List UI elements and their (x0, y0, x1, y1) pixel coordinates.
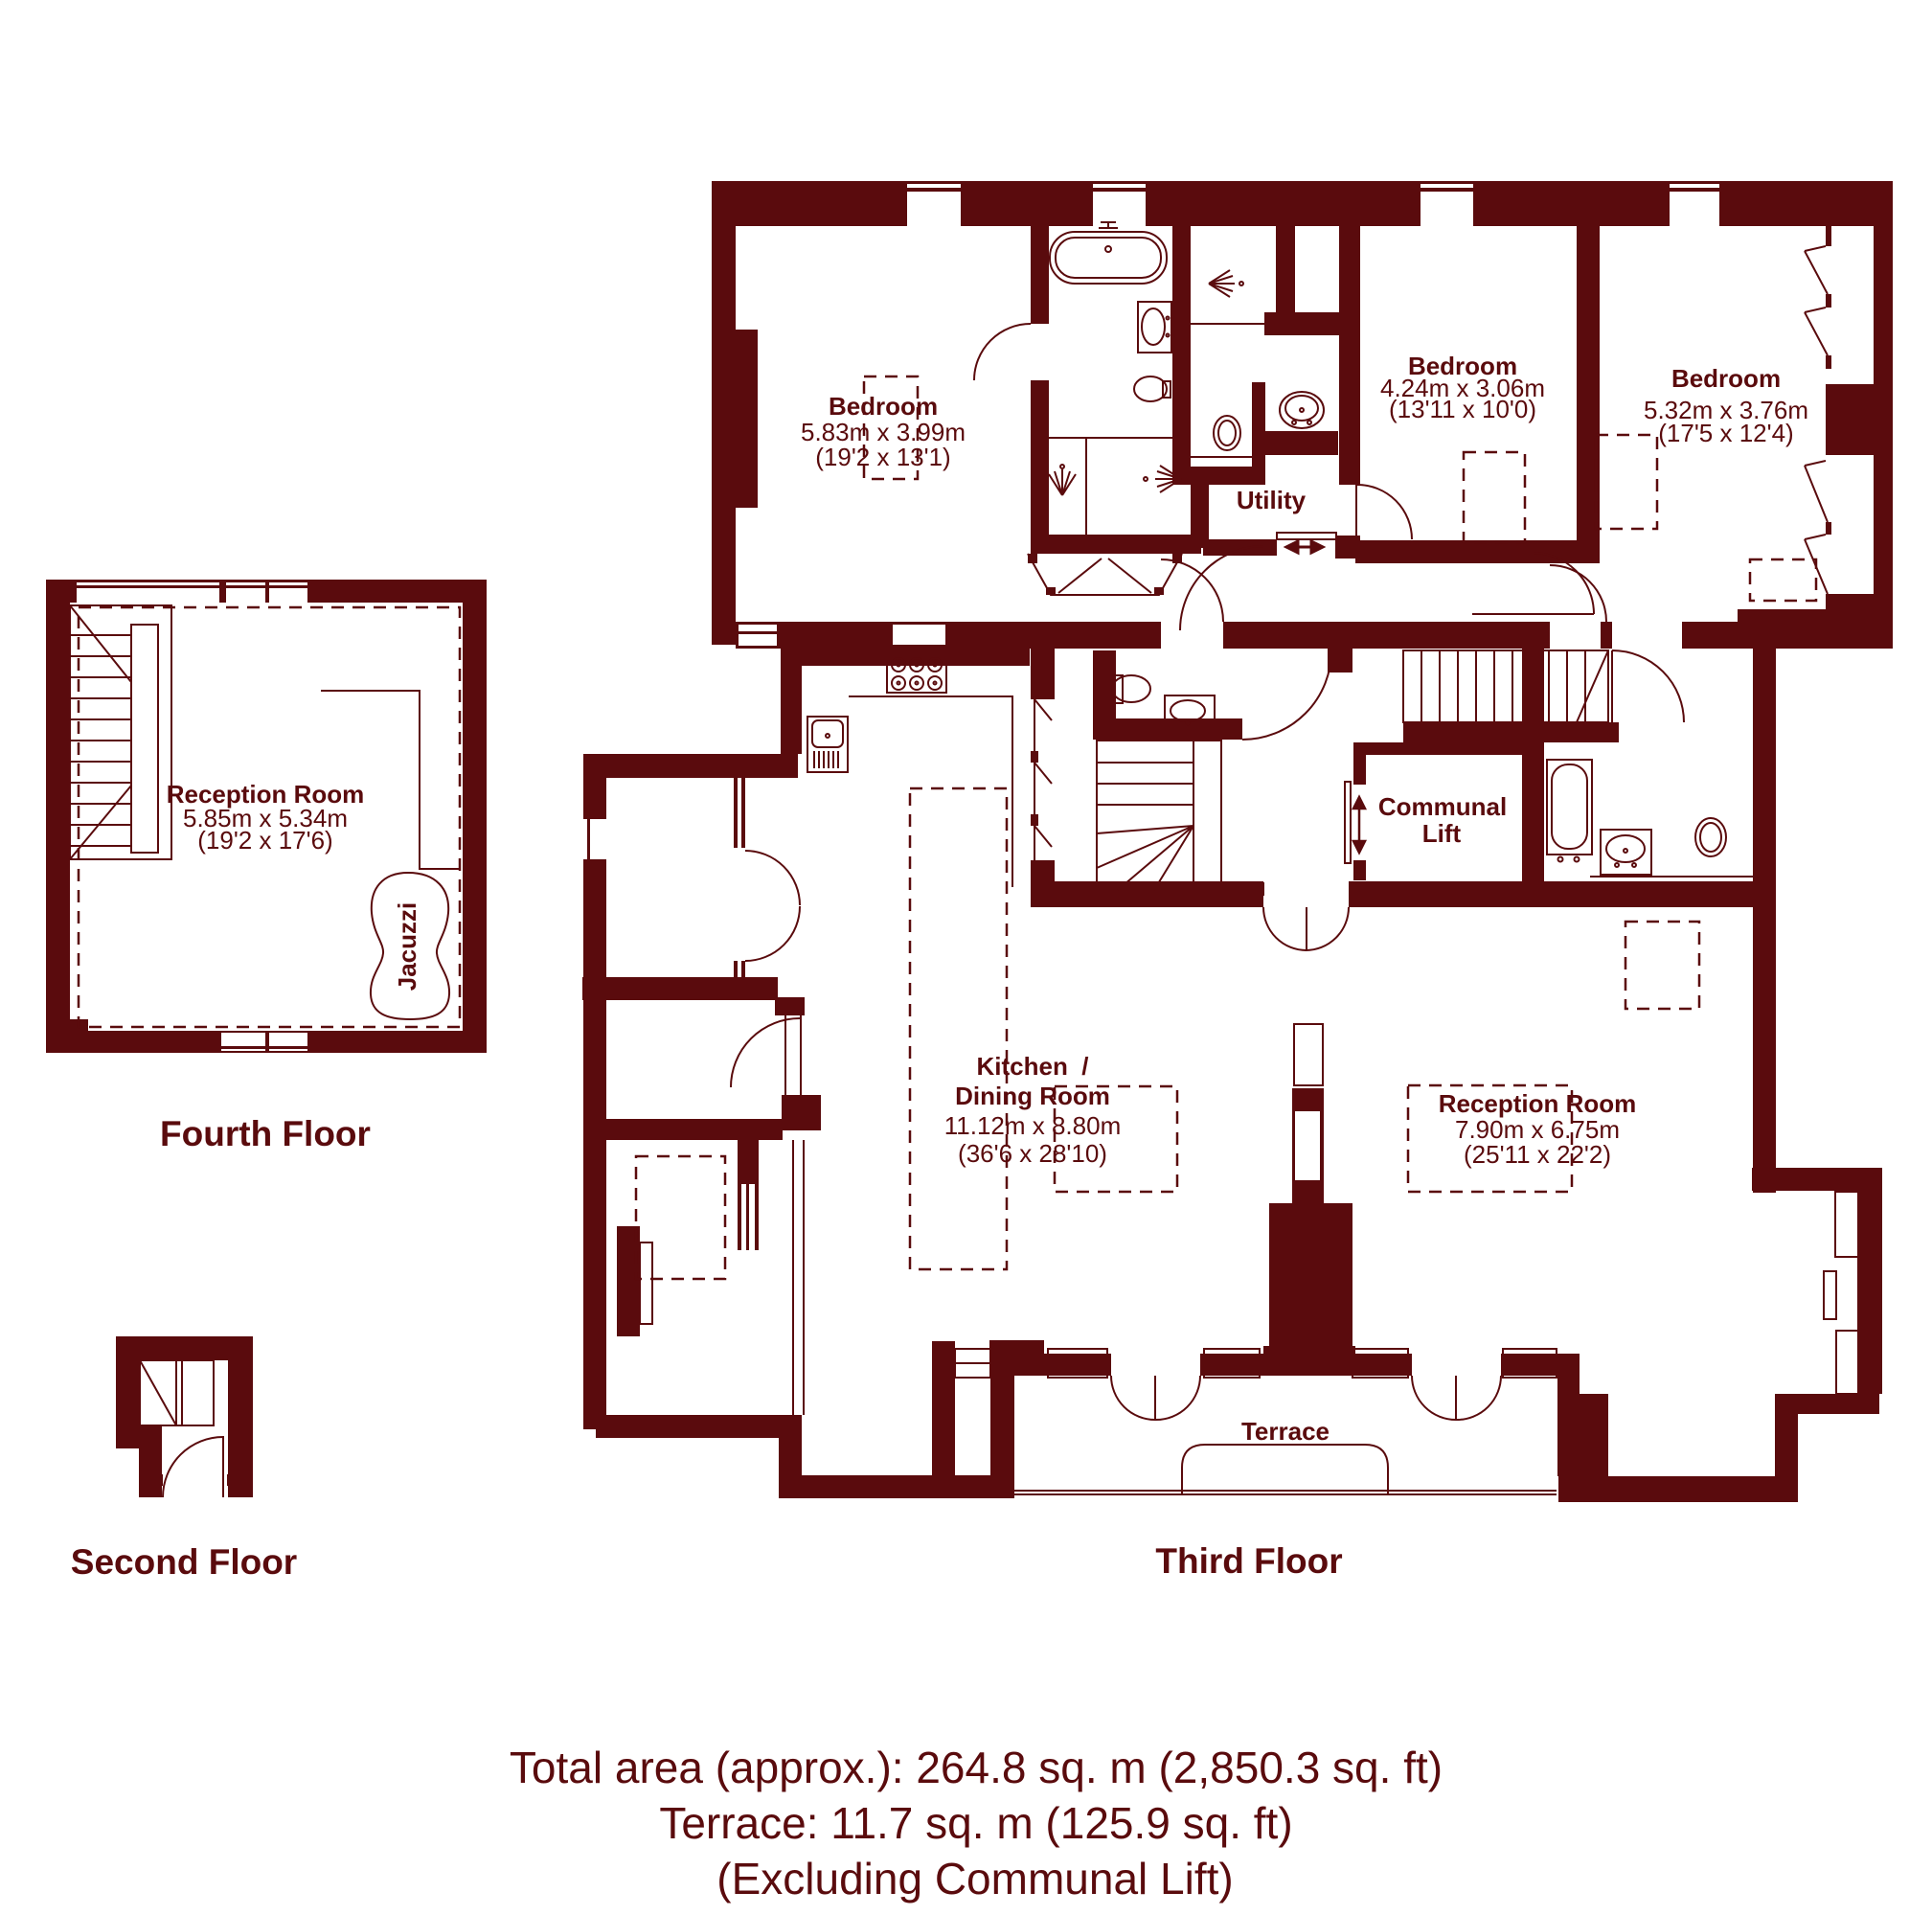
svg-text:(13'11 x 10'0): (13'11 x 10'0) (1389, 395, 1536, 423)
svg-text:Jacuzzi: Jacuzzi (393, 902, 421, 992)
svg-text:(19'2 x 17'6): (19'2 x 17'6) (197, 826, 332, 855)
svg-text:(19'2 x 13'1): (19'2 x 13'1) (815, 443, 950, 471)
svg-text:Bedroom: Bedroom (1671, 364, 1781, 393)
svg-text:Reception Room: Reception Room (1439, 1089, 1637, 1118)
svg-text:Bedroom: Bedroom (829, 392, 938, 421)
svg-text:Utility: Utility (1237, 486, 1307, 514)
svg-text:Fourth Floor: Fourth Floor (160, 1114, 371, 1153)
svg-text:Dining Room: Dining Room (955, 1082, 1110, 1110)
svg-text:Second Floor: Second Floor (71, 1542, 297, 1582)
svg-text:Terrace: 11.7 sq. m (125.9 sq.: Terrace: 11.7 sq. m (125.9 sq. ft) (659, 1798, 1292, 1848)
svg-text:Terrace: Terrace (1241, 1417, 1330, 1446)
svg-text:Third Floor: Third Floor (1155, 1541, 1342, 1581)
svg-text:Total area (approx.): 264.8 sq: Total area (approx.): 264.8 sq. m (2,850… (510, 1743, 1443, 1792)
svg-text:Lift: Lift (1422, 819, 1462, 848)
svg-text:Kitchen /: Kitchen / (976, 1052, 1088, 1081)
svg-text:11.12m x 8.80m: 11.12m x 8.80m (944, 1111, 1122, 1140)
svg-text:Communal: Communal (1378, 792, 1507, 821)
svg-text:(17'5 x 12'4): (17'5 x 12'4) (1658, 419, 1793, 447)
svg-text:(Excluding Communal Lift): (Excluding Communal Lift) (716, 1854, 1233, 1904)
svg-text:(25'11 x 22'2): (25'11 x 22'2) (1464, 1140, 1611, 1169)
svg-text:(36'6 x 28'10): (36'6 x 28'10) (958, 1139, 1107, 1168)
